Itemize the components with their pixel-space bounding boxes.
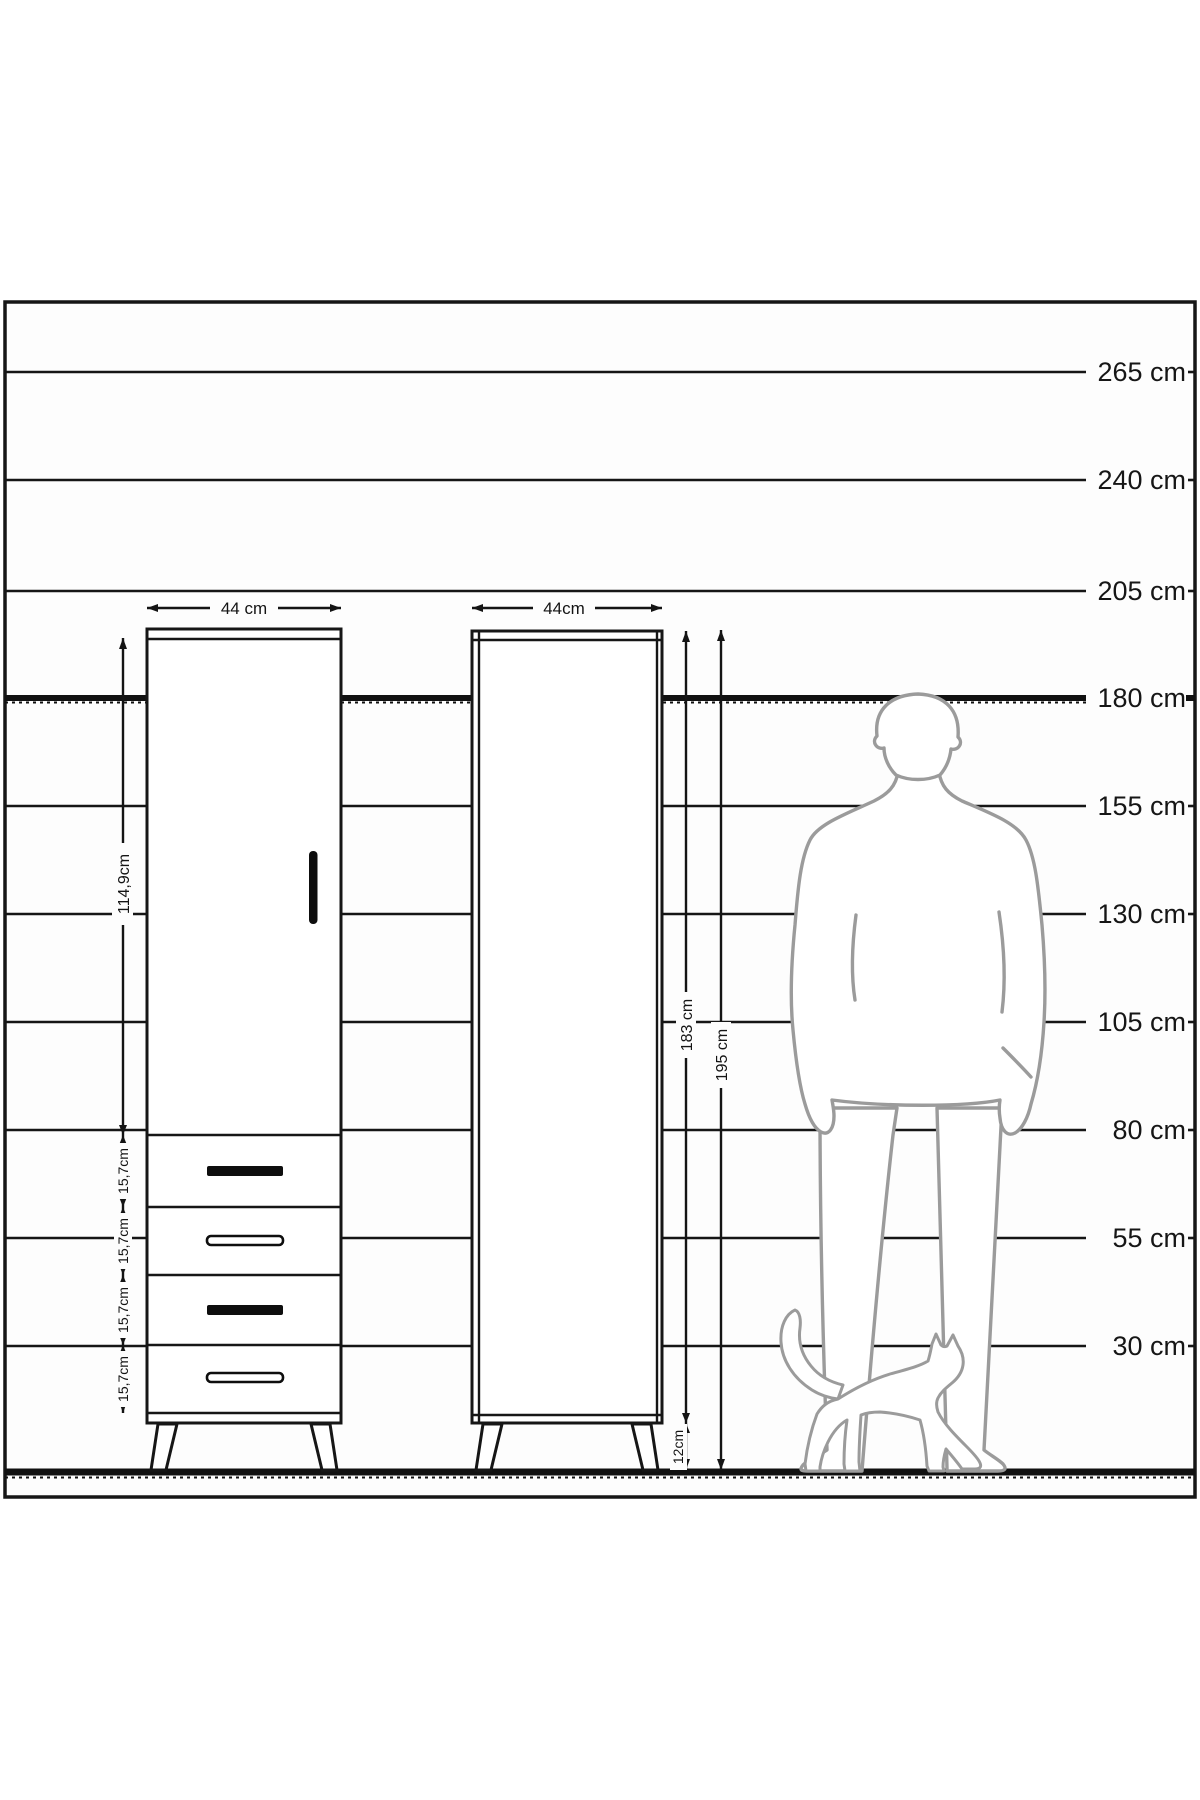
side-total-height-label: 195 cm — [714, 1029, 731, 1081]
scale-label-180: 180 cm — [1097, 683, 1186, 713]
wardrobe-front-view — [147, 629, 341, 1470]
leg-height-label: 12cm — [670, 1430, 686, 1464]
drawer-height-label-2: 15,7cm — [115, 1218, 131, 1264]
drawer-handle-1 — [207, 1166, 283, 1176]
scale-label-30: 30 cm — [1112, 1331, 1186, 1361]
side-body-height-label: 183 cm — [679, 999, 696, 1051]
scale-label-55: 55 cm — [1112, 1223, 1186, 1253]
man-torso — [791, 772, 1045, 1134]
scale-label-130: 130 cm — [1097, 899, 1186, 929]
furniture-dimension-diagram: 44 cm 44cm 114,9cm 15,7cm 15,7cm 15,7cm … — [0, 0, 1200, 1800]
front-body — [147, 629, 341, 1423]
drawer-handle-3 — [207, 1305, 283, 1315]
side-width-label: 44cm — [543, 599, 585, 618]
scale-label-105: 105 cm — [1097, 1007, 1186, 1037]
scale-label-265: 265 cm — [1097, 357, 1186, 387]
door-handle — [309, 851, 318, 924]
scale-label-155: 155 cm — [1097, 791, 1186, 821]
man-head — [875, 694, 961, 780]
side-body — [472, 631, 662, 1423]
scale-label-240: 240 cm — [1097, 465, 1186, 495]
diagram-canvas: 44 cm 44cm 114,9cm 15,7cm 15,7cm 15,7cm … — [0, 0, 1200, 1800]
drawer-handle-2 — [207, 1236, 283, 1245]
drawer-height-label-4: 15,7cm — [115, 1356, 131, 1402]
wardrobe-side-view — [472, 631, 662, 1470]
drawer-height-label-3: 15,7cm — [115, 1287, 131, 1333]
door-height-label: 114,9cm — [116, 854, 133, 914]
scale-label-205: 205 cm — [1097, 576, 1186, 606]
front-width-label: 44 cm — [221, 599, 267, 618]
scale-label-80: 80 cm — [1112, 1115, 1186, 1145]
drawer-height-label-1: 15,7cm — [115, 1148, 131, 1194]
drawer-handle-4 — [207, 1373, 283, 1382]
